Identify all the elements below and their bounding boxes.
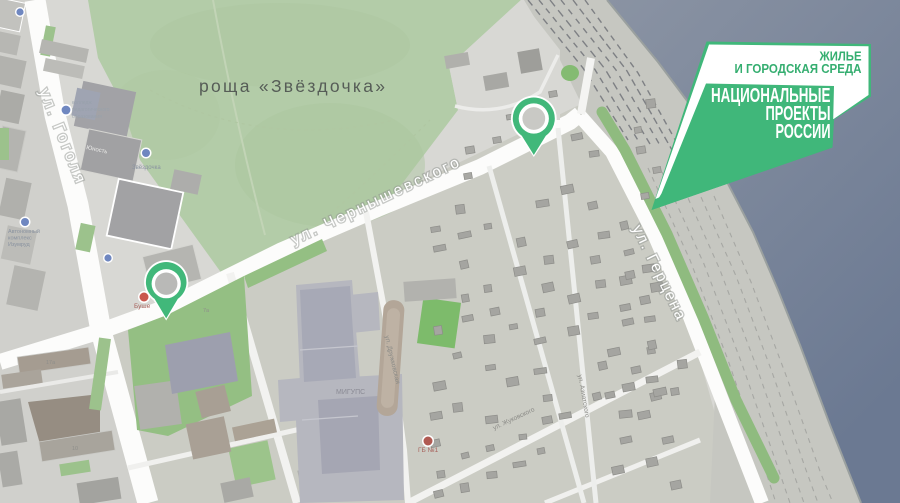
svg-text:Автономный: Автономный xyxy=(8,228,40,235)
svg-text:Звёздочка: Звёздочка xyxy=(132,165,161,171)
svg-text:РОССИИ: РОССИИ xyxy=(776,121,831,143)
svg-text:Буше: Буше xyxy=(134,303,151,310)
svg-text:И ГОРОДСКАЯ СРЕДА: И ГОРОДСКАЯ СРЕДА xyxy=(735,62,862,76)
svg-text:ЖИЛЬЕ: ЖИЛЬЕ xyxy=(819,49,862,63)
svg-text:колледж: колледж xyxy=(72,100,92,106)
svg-text:роща «Звёздочка»: роща «Звёздочка» xyxy=(199,76,385,96)
svg-text:образования: образования xyxy=(72,114,102,120)
svg-text:ГБ №1: ГБ №1 xyxy=(418,447,439,454)
svg-text:10: 10 xyxy=(72,446,78,452)
svg-text:комплекс: комплекс xyxy=(8,236,32,242)
svg-text:Изумруд: Изумруд xyxy=(8,242,30,248)
svg-text:17а: 17а xyxy=(46,360,56,366)
svg-text:педагогического: педагогического xyxy=(72,107,110,113)
svg-text:МИГУПС: МИГУПС xyxy=(336,389,365,396)
svg-text:7а: 7а xyxy=(203,308,210,314)
